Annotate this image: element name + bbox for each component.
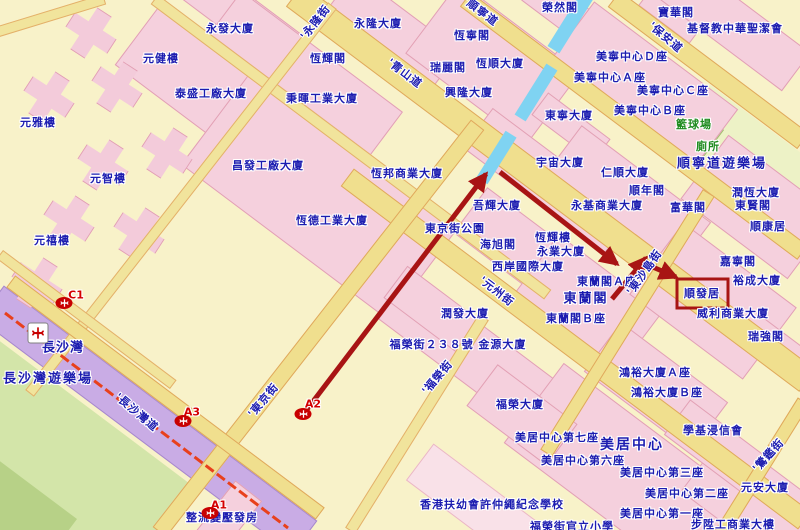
map-label: 富華閣 (670, 199, 706, 215)
map-label: 東寧大廈 (545, 107, 593, 123)
map-label: 仁順大廈 (601, 164, 649, 180)
map-label: 籃球場 (676, 116, 712, 132)
map-label: 泰盛工廠大廈 (175, 85, 247, 101)
mtr-station-icon[interactable] (28, 323, 49, 344)
map-label: 永業大廈 (537, 243, 585, 259)
map-label: 威利商業大廈 (697, 305, 769, 321)
map-label: 順康居 (750, 218, 786, 234)
map-label: 東蘭閣 (563, 288, 608, 307)
map-label: 宇宙大廈 (536, 154, 584, 170)
map-label: 步陞工商業大樓 (691, 516, 775, 530)
map-label: 鴻裕大廈Ｂ座 (631, 384, 703, 400)
map-label: 恆德工業大廈 (296, 212, 368, 228)
map-label: 東蘭閣Ｂ座 (546, 310, 606, 326)
map-label: 福榮街２３８號 金源大廈 (390, 336, 527, 352)
map-label: 美居中心第三座 (620, 464, 704, 480)
map-label: 美寧中心Ｃ座 (637, 82, 709, 98)
map-label: 美寧中心Ａ座 (574, 69, 646, 85)
map-label: 美居中心第七座 (515, 429, 599, 445)
map-label: 榮然閣 (542, 0, 578, 15)
map-label: 永隆大廈 (354, 15, 402, 31)
map-label: 香港扶幼會許仲繩紀念學校 (420, 496, 564, 512)
map-label: 恆寧閣 (454, 27, 490, 43)
map-label: 恆輝閣 (310, 50, 346, 66)
map-label: 長沙灣遊樂場 (3, 368, 93, 387)
map-label: 秉暉工業大廈 (286, 90, 358, 106)
map-label: 福榮大廈 (496, 396, 544, 412)
map-label: 西岸國際大廈 (492, 258, 564, 274)
map-label: 元禧樓 (34, 232, 70, 248)
map-label: 元健樓 (143, 50, 179, 66)
route-arrow (305, 174, 486, 412)
map-label: 美居中心 (600, 434, 664, 454)
map-label: 海旭閣 (480, 236, 516, 252)
map-label: 興隆大廈 (445, 84, 493, 100)
map-label: 恆順大廈 (476, 55, 524, 71)
map-label: 學基浸信會 (683, 422, 743, 438)
map-label: 昌發工廠大廈 (232, 157, 304, 173)
map-label: 順年閣 (629, 182, 665, 198)
map-canvas[interactable]: 永發大廈元健樓泰盛工廠大廈元雅樓元智樓元禧樓秉暉工業大廈恆輝閣永隆大廈昌發工廠大… (0, 0, 800, 530)
mtr-exit-badge-a1[interactable] (202, 507, 219, 519)
map-label: 美寧中心Ｄ座 (596, 48, 668, 64)
map-label: 恆邦商業大廈 (371, 165, 443, 181)
map-label: 瑞強閣 (748, 328, 784, 344)
map-label: 東賢閣 (735, 197, 771, 213)
map-label: 元安大廈 (741, 479, 789, 495)
destination-label: 順發居 (684, 285, 720, 301)
map-label: 鴻裕大廈Ａ座 (619, 364, 691, 380)
map-label: 福榮街官立小學 (530, 518, 614, 530)
map-label: 寶華閣 (658, 4, 694, 20)
map-label: 裕成大廈 (733, 272, 781, 288)
map-label: 元智樓 (90, 170, 126, 186)
map-label: 嘉寧閣 (720, 253, 756, 269)
map-label: 順寧道遊樂場 (677, 153, 767, 172)
map-label: 永基商業大廈 (571, 197, 643, 213)
map-label: 瑞麗閣 (430, 59, 466, 75)
map-label: 潤發大廈 (441, 305, 489, 321)
map-label: 美居中心第二座 (645, 485, 729, 501)
mtr-exit-badge-a3[interactable] (175, 415, 192, 427)
mtr-exit-badge-c1[interactable] (56, 297, 73, 309)
map-label: 基督教中華聖潔會 (687, 20, 783, 36)
map-label: 東京街公園 (425, 220, 485, 236)
mtr-exit-badge-a2[interactable] (295, 408, 312, 420)
map-label: 永發大廈 (206, 20, 254, 36)
map-label: 美居中心第六座 (541, 452, 625, 468)
map-label: 吾輝大廈 (473, 197, 521, 213)
map-label: 元雅樓 (20, 114, 56, 130)
